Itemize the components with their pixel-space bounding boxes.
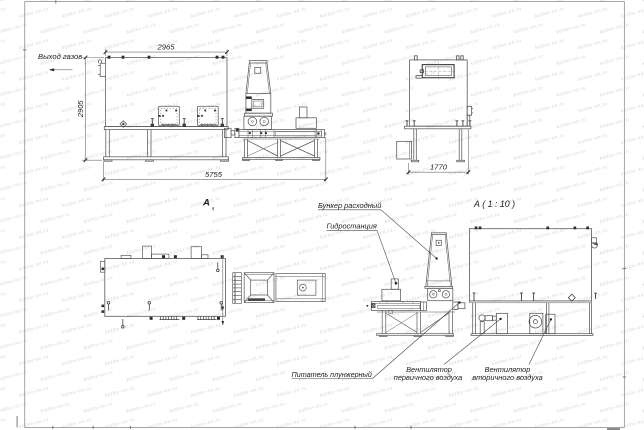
svg-text:kotlov-nn.ru: kotlov-nn.ru [341, 243, 372, 257]
svg-text:kotlov-nn.ru: kotlov-nn.ru [83, 117, 114, 131]
svg-text:kotlov-nn.ru: kotlov-nn.ru [212, 338, 243, 352]
svg-text:kotlov-nn.ru: kotlov-nn.ru [276, 290, 307, 304]
svg-text:kotlov-nn.ru: kotlov-nn.ru [599, 401, 630, 415]
svg-text:kotlov-nn.ru: kotlov-nn.ru [427, 85, 458, 99]
svg-text:kotlov-nn.ru: kotlov-nn.ru [577, 132, 608, 146]
svg-text:kotlov-nn.ru: kotlov-nn.ru [18, 38, 49, 52]
svg-text:kotlov-nn.ru: kotlov-nn.ru [40, 338, 71, 352]
svg-text:kotlov-nn.ru: kotlov-nn.ru [233, 354, 264, 368]
svg-text:kotlov-nn.ru: kotlov-nn.ru [362, 132, 393, 146]
svg-text:kotlov-nn.ru: kotlov-nn.ru [0, 117, 28, 131]
svg-text:kotlov-nn.ru: kotlov-nn.ru [190, 290, 221, 304]
svg-text:kotlov-nn.ru: kotlov-nn.ru [83, 275, 114, 289]
svg-text:kotlov-nn.ru: kotlov-nn.ru [83, 22, 114, 36]
svg-text:kotlov-nn.ru: kotlov-nn.ru [255, 180, 286, 194]
svg-text:kotlov-nn.ru: kotlov-nn.ru [534, 6, 565, 20]
svg-text:kotlov-nn.ru: kotlov-nn.ru [190, 322, 221, 336]
svg-text:kotlov-nn.ru: kotlov-nn.ru [470, 85, 501, 99]
svg-text:kotlov-nn.ru: kotlov-nn.ru [104, 69, 135, 83]
svg-text:kotlov-nn.ru: kotlov-nn.ru [491, 385, 522, 399]
svg-text:kotlov-nn.ru: kotlov-nn.ru [534, 290, 565, 304]
svg-text:kotlov-nn.ru: kotlov-nn.ru [298, 306, 329, 320]
svg-text:kotlov-nn.ru: kotlov-nn.ru [255, 338, 286, 352]
svg-text:kotlov-nn.ru: kotlov-nn.ru [448, 164, 479, 178]
svg-text:kotlov-nn.ru: kotlov-nn.ru [470, 243, 501, 257]
svg-text:kotlov-nn.ru: kotlov-nn.ru [0, 290, 6, 304]
svg-text:kotlov-nn.ru: kotlov-nn.ru [470, 401, 501, 415]
svg-text:kotlov-nn.ru: kotlov-nn.ru [104, 227, 135, 241]
svg-text:kotlov-nn.ru: kotlov-nn.ru [448, 417, 479, 430]
svg-text:kotlov-nn.ru: kotlov-nn.ru [0, 180, 28, 194]
svg-text:kotlov-nn.ru: kotlov-nn.ru [18, 69, 49, 83]
svg-text:kotlov-nn.ru: kotlov-nn.ru [61, 385, 92, 399]
svg-text:kotlov-nn.ru: kotlov-nn.ru [384, 22, 415, 36]
svg-text:kotlov-nn.ru: kotlov-nn.ru [83, 85, 114, 99]
svg-text:kotlov-nn.ru: kotlov-nn.ru [255, 306, 286, 320]
svg-text:kotlov-nn.ru: kotlov-nn.ru [61, 196, 92, 210]
svg-text:kotlov-nn.ru: kotlov-nn.ru [405, 196, 436, 210]
svg-text:kotlov-nn.ru: kotlov-nn.ru [534, 132, 565, 146]
svg-text:kotlov-nn.ru: kotlov-nn.ru [40, 148, 71, 162]
svg-text:kotlov-nn.ru: kotlov-nn.ru [276, 322, 307, 336]
svg-text:kotlov-nn.ru: kotlov-nn.ru [556, 85, 587, 99]
svg-text:kotlov-nn.ru: kotlov-nn.ru [0, 259, 6, 273]
svg-text:kotlov-nn.ru: kotlov-nn.ru [0, 132, 6, 146]
svg-text:kotlov-nn.ru: kotlov-nn.ru [599, 243, 630, 257]
svg-text:kotlov-nn.ru: kotlov-nn.ru [0, 85, 28, 99]
svg-text:kotlov-nn.ru: kotlov-nn.ru [61, 6, 92, 20]
svg-text:kotlov-nn.ru: kotlov-nn.ru [0, 369, 28, 383]
svg-text:kotlov-nn.ru: kotlov-nn.ru [298, 180, 329, 194]
svg-text:kotlov-nn.ru: kotlov-nn.ru [362, 417, 393, 430]
svg-text:kotlov-nn.ru: kotlov-nn.ru [233, 196, 264, 210]
svg-text:kotlov-nn.ru: kotlov-nn.ru [233, 164, 264, 178]
svg-text:kotlov-nn.ru: kotlov-nn.ru [212, 401, 243, 415]
svg-text:kotlov-nn.ru: kotlov-nn.ru [233, 101, 264, 115]
svg-text:kotlov-nn.ru: kotlov-nn.ru [255, 117, 286, 131]
svg-text:kotlov-nn.ru: kotlov-nn.ru [61, 322, 92, 336]
svg-text:kotlov-nn.ru: kotlov-nn.ru [599, 148, 630, 162]
svg-text:kotlov-nn.ru: kotlov-nn.ru [83, 180, 114, 194]
svg-text:kotlov-nn.ru: kotlov-nn.ru [255, 369, 286, 383]
svg-text:kotlov-nn.ru: kotlov-nn.ru [427, 180, 458, 194]
svg-text:kotlov-nn.ru: kotlov-nn.ru [233, 259, 264, 273]
svg-text:kotlov-nn.ru: kotlov-nn.ru [556, 117, 587, 131]
svg-text:kotlov-nn.ru: kotlov-nn.ru [405, 101, 436, 115]
svg-text:kotlov-nn.ru: kotlov-nn.ru [599, 306, 630, 320]
svg-text:kotlov-nn.ru: kotlov-nn.ru [147, 101, 178, 115]
svg-text:Бункер расходный: Бункер расходный [318, 201, 381, 210]
svg-text:kotlov-nn.ru: kotlov-nn.ru [491, 290, 522, 304]
svg-text:kotlov-nn.ru: kotlov-nn.ru [126, 85, 157, 99]
svg-text:kotlov-nn.ru: kotlov-nn.ru [40, 22, 71, 36]
svg-text:первичного воздуха: первичного воздуха [394, 373, 462, 382]
svg-text:kotlov-nn.ru: kotlov-nn.ru [126, 401, 157, 415]
svg-text:kotlov-nn.ru: kotlov-nn.ru [83, 369, 114, 383]
svg-text:kotlov-nn.ru: kotlov-nn.ru [362, 69, 393, 83]
svg-text:kotlov-nn.ru: kotlov-nn.ru [405, 385, 436, 399]
svg-text:kotlov-nn.ru: kotlov-nn.ru [190, 417, 221, 430]
svg-text:kotlov-nn.ru: kotlov-nn.ru [40, 117, 71, 131]
svg-text:kotlov-nn.ru: kotlov-nn.ru [556, 243, 587, 257]
svg-text:kotlov-nn.ru: kotlov-nn.ru [470, 148, 501, 162]
svg-text:kotlov-nn.ru: kotlov-nn.ru [599, 211, 630, 225]
svg-text:kotlov-nn.ru: kotlov-nn.ru [212, 243, 243, 257]
svg-text:2965: 2965 [157, 42, 176, 51]
svg-text:kotlov-nn.ru: kotlov-nn.ru [556, 401, 587, 415]
svg-text:kotlov-nn.ru: kotlov-nn.ru [599, 22, 630, 36]
svg-text:kotlov-nn.ru: kotlov-nn.ru [491, 132, 522, 146]
svg-text:kotlov-nn.ru: kotlov-nn.ru [83, 306, 114, 320]
svg-text:kotlov-nn.ru: kotlov-nn.ru [556, 369, 587, 383]
svg-text:kotlov-nn.ru: kotlov-nn.ru [0, 401, 28, 415]
svg-text:kotlov-nn.ru: kotlov-nn.ru [147, 227, 178, 241]
svg-text:kotlov-nn.ru: kotlov-nn.ru [169, 369, 200, 383]
svg-text:kotlov-nn.ru: kotlov-nn.ru [341, 117, 372, 131]
svg-text:kotlov-nn.ru: kotlov-nn.ru [0, 196, 6, 210]
svg-text:kotlov-nn.ru: kotlov-nn.ru [577, 354, 608, 368]
svg-text:kotlov-nn.ru: kotlov-nn.ru [577, 38, 608, 52]
svg-text:kotlov-nn.ru: kotlov-nn.ru [599, 369, 630, 383]
svg-text:kotlov-nn.ru: kotlov-nn.ru [61, 164, 92, 178]
svg-text:kotlov-nn.ru: kotlov-nn.ru [18, 417, 49, 430]
svg-text:kotlov-nn.ru: kotlov-nn.ru [448, 38, 479, 52]
svg-text:kotlov-nn.ru: kotlov-nn.ru [169, 275, 200, 289]
svg-text:kotlov-nn.ru: kotlov-nn.ru [319, 6, 350, 20]
svg-text:kotlov-nn.ru: kotlov-nn.ru [147, 322, 178, 336]
svg-text:kotlov-nn.ru: kotlov-nn.ru [126, 211, 157, 225]
svg-text:kotlov-nn.ru: kotlov-nn.ru [534, 354, 565, 368]
svg-text:kotlov-nn.ru: kotlov-nn.ru [577, 227, 608, 241]
svg-text:kotlov-nn.ru: kotlov-nn.ru [276, 385, 307, 399]
svg-text:kotlov-nn.ru: kotlov-nn.ru [298, 243, 329, 257]
svg-text:kotlov-nn.ru: kotlov-nn.ru [319, 164, 350, 178]
svg-text:kotlov-nn.ru: kotlov-nn.ru [384, 148, 415, 162]
svg-text:kotlov-nn.ru: kotlov-nn.ru [405, 259, 436, 273]
svg-text:kotlov-nn.ru: kotlov-nn.ru [384, 275, 415, 289]
svg-text:kotlov-nn.ru: kotlov-nn.ru [513, 275, 544, 289]
svg-text:kotlov-nn.ru: kotlov-nn.ru [40, 211, 71, 225]
svg-text:kotlov-nn.ru: kotlov-nn.ru [212, 180, 243, 194]
svg-text:kotlov-nn.ru: kotlov-nn.ru [0, 306, 28, 320]
svg-text:kotlov-nn.ru: kotlov-nn.ru [147, 259, 178, 273]
svg-text:kotlov-nn.ru: kotlov-nn.ru [448, 101, 479, 115]
svg-text:kotlov-nn.ru: kotlov-nn.ru [341, 53, 372, 67]
svg-text:kotlov-nn.ru: kotlov-nn.ru [18, 196, 49, 210]
svg-text:kotlov-nn.ru: kotlov-nn.ru [577, 6, 608, 20]
svg-text:kotlov-nn.ru: kotlov-nn.ru [233, 38, 264, 52]
svg-text:kotlov-nn.ru: kotlov-nn.ru [233, 417, 264, 430]
svg-text:kotlov-nn.ru: kotlov-nn.ru [61, 69, 92, 83]
svg-text:kotlov-nn.ru: kotlov-nn.ru [534, 196, 565, 210]
svg-text:kotlov-nn.ru: kotlov-nn.ru [341, 306, 372, 320]
svg-text:kotlov-nn.ru: kotlov-nn.ru [169, 53, 200, 67]
svg-text:kotlov-nn.ru: kotlov-nn.ru [362, 38, 393, 52]
svg-text:kotlov-nn.ru: kotlov-nn.ru [104, 322, 135, 336]
svg-text:kotlov-nn.ru: kotlov-nn.ru [18, 290, 49, 304]
svg-text:kotlov-nn.ru: kotlov-nn.ru [448, 385, 479, 399]
svg-text:kotlov-nn.ru: kotlov-nn.ru [599, 275, 630, 289]
svg-text:kotlov-nn.ru: kotlov-nn.ru [276, 196, 307, 210]
svg-text:kotlov-nn.ru: kotlov-nn.ru [104, 101, 135, 115]
svg-text:kotlov-nn.ru: kotlov-nn.ru [298, 85, 329, 99]
svg-text:kotlov-nn.ru: kotlov-nn.ru [0, 227, 6, 241]
svg-text:kotlov-nn.ru: kotlov-nn.ru [556, 306, 587, 320]
svg-text:kotlov-nn.ru: kotlov-nn.ru [0, 69, 6, 83]
svg-text:kotlov-nn.ru: kotlov-nn.ru [0, 211, 28, 225]
svg-text:А: А [202, 198, 210, 209]
svg-text:kotlov-nn.ru: kotlov-nn.ru [384, 53, 415, 67]
svg-text:kotlov-nn.ru: kotlov-nn.ru [0, 243, 28, 257]
svg-text:kotlov-nn.ru: kotlov-nn.ru [40, 401, 71, 415]
svg-text:kotlov-nn.ru: kotlov-nn.ru [319, 354, 350, 368]
svg-text:kotlov-nn.ru: kotlov-nn.ru [61, 290, 92, 304]
svg-text:kotlov-nn.ru: kotlov-nn.ru [18, 6, 49, 20]
svg-text:kotlov-nn.ru: kotlov-nn.ru [427, 22, 458, 36]
svg-text:kotlov-nn.ru: kotlov-nn.ru [384, 211, 415, 225]
svg-text:kotlov-nn.ru: kotlov-nn.ru [40, 243, 71, 257]
svg-text:kotlov-nn.ru: kotlov-nn.ru [470, 275, 501, 289]
svg-text:kotlov-nn.ru: kotlov-nn.ru [126, 53, 157, 67]
svg-text:kotlov-nn.ru: kotlov-nn.ru [362, 290, 393, 304]
svg-text:kotlov-nn.ru: kotlov-nn.ru [104, 385, 135, 399]
svg-text:kotlov-nn.ru: kotlov-nn.ru [405, 132, 436, 146]
svg-text:kotlov-nn.ru: kotlov-nn.ru [147, 69, 178, 83]
svg-text:kotlov-nn.ru: kotlov-nn.ru [18, 164, 49, 178]
svg-text:kotlov-nn.ru: kotlov-nn.ru [599, 180, 630, 194]
svg-text:kotlov-nn.ru: kotlov-nn.ru [212, 85, 243, 99]
svg-text:kotlov-nn.ru: kotlov-nn.ru [40, 85, 71, 99]
svg-text:kotlov-nn.ru: kotlov-nn.ru [0, 164, 6, 178]
svg-text:kotlov-nn.ru: kotlov-nn.ru [319, 101, 350, 115]
svg-text:kotlov-nn.ru: kotlov-nn.ru [190, 132, 221, 146]
svg-text:kotlov-nn.ru: kotlov-nn.ru [169, 22, 200, 36]
svg-text:kotlov-nn.ru: kotlov-nn.ru [341, 85, 372, 99]
svg-text:kotlov-nn.ru: kotlov-nn.ru [470, 211, 501, 225]
svg-text:kotlov-nn.ru: kotlov-nn.ru [233, 227, 264, 241]
svg-text:kotlov-nn.ru: kotlov-nn.ru [556, 180, 587, 194]
svg-text:kotlov-nn.ru: kotlov-nn.ru [104, 196, 135, 210]
svg-text:kotlov-nn.ru: kotlov-nn.ru [405, 417, 436, 430]
svg-text:kotlov-nn.ru: kotlov-nn.ru [341, 22, 372, 36]
svg-text:kotlov-nn.ru: kotlov-nn.ru [61, 354, 92, 368]
svg-text:Выход газов: Выход газов [38, 52, 82, 61]
svg-text:kotlov-nn.ru: kotlov-nn.ru [126, 22, 157, 36]
svg-text:kotlov-nn.ru: kotlov-nn.ru [104, 6, 135, 20]
svg-text:kotlov-nn.ru: kotlov-nn.ru [126, 243, 157, 257]
svg-text:kotlov-nn.ru: kotlov-nn.ru [104, 354, 135, 368]
svg-text:kotlov-nn.ru: kotlov-nn.ru [384, 180, 415, 194]
svg-text:kotlov-nn.ru: kotlov-nn.ru [0, 38, 6, 52]
svg-text:kotlov-nn.ru: kotlov-nn.ru [276, 417, 307, 430]
svg-text:kotlov-nn.ru: kotlov-nn.ru [0, 354, 6, 368]
svg-text:kotlov-nn.ru: kotlov-nn.ru [255, 401, 286, 415]
svg-text:kotlov-nn.ru: kotlov-nn.ru [190, 354, 221, 368]
svg-text:kotlov-nn.ru: kotlov-nn.ru [276, 38, 307, 52]
svg-text:kotlov-nn.ru: kotlov-nn.ru [0, 22, 28, 36]
svg-text:kotlov-nn.ru: kotlov-nn.ru [470, 22, 501, 36]
svg-text:kotlov-nn.ru: kotlov-nn.ru [384, 243, 415, 257]
svg-text:kotlov-nn.ru: kotlov-nn.ru [298, 22, 329, 36]
svg-text:kotlov-nn.ru: kotlov-nn.ru [577, 385, 608, 399]
svg-text:kotlov-nn.ru: kotlov-nn.ru [104, 259, 135, 273]
svg-text:kotlov-nn.ru: kotlov-nn.ru [448, 227, 479, 241]
svg-text:kotlov-nn.ru: kotlov-nn.ru [276, 132, 307, 146]
svg-text:kotlov-nn.ru: kotlov-nn.ru [104, 164, 135, 178]
svg-text:kotlov-nn.ru: kotlov-nn.ru [534, 417, 565, 430]
svg-text:kotlov-nn.ru: kotlov-nn.ru [319, 259, 350, 273]
svg-text:kotlov-nn.ru: kotlov-nn.ru [276, 354, 307, 368]
svg-text:kotlov-nn.ru: kotlov-nn.ru [513, 180, 544, 194]
svg-text:kotlov-nn.ru: kotlov-nn.ru [319, 322, 350, 336]
svg-text:kotlov-nn.ru: kotlov-nn.ru [513, 22, 544, 36]
svg-text:kotlov-nn.ru: kotlov-nn.ru [556, 275, 587, 289]
svg-text:kotlov-nn.ru: kotlov-nn.ru [427, 401, 458, 415]
svg-text:kotlov-nn.ru: kotlov-nn.ru [448, 6, 479, 20]
svg-text:kotlov-nn.ru: kotlov-nn.ru [0, 322, 6, 336]
svg-text:kotlov-nn.ru: kotlov-nn.ru [169, 180, 200, 194]
svg-text:kotlov-nn.ru: kotlov-nn.ru [319, 69, 350, 83]
svg-text:kotlov-nn.ru: kotlov-nn.ru [0, 275, 28, 289]
svg-text:kotlov-nn.ru: kotlov-nn.ru [491, 101, 522, 115]
svg-text:kotlov-nn.ru: kotlov-nn.ru [577, 196, 608, 210]
svg-text:kotlov-nn.ru: kotlov-nn.ru [491, 69, 522, 83]
svg-text:kotlov-nn.ru: kotlov-nn.ru [233, 6, 264, 20]
svg-text:kotlov-nn.ru: kotlov-nn.ru [341, 338, 372, 352]
svg-text:kotlov-nn.ru: kotlov-nn.ru [298, 401, 329, 415]
svg-text:kotlov-nn.ru: kotlov-nn.ru [190, 69, 221, 83]
svg-text:kotlov-nn.ru: kotlov-nn.ru [40, 369, 71, 383]
svg-text:kotlov-nn.ru: kotlov-nn.ru [599, 338, 630, 352]
svg-text:kotlov-nn.ru: kotlov-nn.ru [212, 53, 243, 67]
svg-text:kotlov-nn.ru: kotlov-nn.ru [233, 322, 264, 336]
svg-text:kotlov-nn.ru: kotlov-nn.ru [556, 53, 587, 67]
svg-text:kotlov-nn.ru: kotlov-nn.ru [470, 117, 501, 131]
svg-text:kotlov-nn.ru: kotlov-nn.ru [362, 164, 393, 178]
svg-text:kotlov-nn.ru: kotlov-nn.ru [276, 227, 307, 241]
svg-text:kotlov-nn.ru: kotlov-nn.ru [169, 85, 200, 99]
svg-text:kotlov-nn.ru: kotlov-nn.ru [212, 306, 243, 320]
svg-text:kotlov-nn.ru: kotlov-nn.ru [212, 211, 243, 225]
svg-text:kotlov-nn.ru: kotlov-nn.ru [276, 69, 307, 83]
svg-text:kotlov-nn.ru: kotlov-nn.ru [599, 53, 630, 67]
svg-text:kotlov-nn.ru: kotlov-nn.ru [470, 53, 501, 67]
svg-text:kotlov-nn.ru: kotlov-nn.ru [126, 338, 157, 352]
svg-text:kotlov-nn.ru: kotlov-nn.ru [513, 243, 544, 257]
svg-text:kotlov-nn.ru: kotlov-nn.ru [147, 132, 178, 146]
svg-text:kotlov-nn.ru: kotlov-nn.ru [0, 101, 6, 115]
svg-text:kotlov-nn.ru: kotlov-nn.ru [0, 417, 6, 430]
svg-text:kotlov-nn.ru: kotlov-nn.ru [18, 354, 49, 368]
svg-text:kotlov-nn.ru: kotlov-nn.ru [104, 38, 135, 52]
svg-text:kotlov-nn.ru: kotlov-nn.ru [470, 180, 501, 194]
svg-text:kotlov-nn.ru: kotlov-nn.ru [255, 211, 286, 225]
svg-text:kotlov-nn.ru: kotlov-nn.ru [405, 38, 436, 52]
svg-text:kotlov-nn.ru: kotlov-nn.ru [212, 22, 243, 36]
svg-text:kotlov-nn.ru: kotlov-nn.ru [147, 196, 178, 210]
svg-text:kotlov-nn.ru: kotlov-nn.ru [577, 290, 608, 304]
svg-text:kotlov-nn.ru: kotlov-nn.ru [534, 227, 565, 241]
svg-text:kotlov-nn.ru: kotlov-nn.ru [362, 6, 393, 20]
svg-text:Гидростанция: Гидростанция [327, 222, 377, 231]
svg-text:kotlov-nn.ru: kotlov-nn.ru [0, 148, 28, 162]
svg-text:kotlov-nn.ru: kotlov-nn.ru [491, 417, 522, 430]
svg-text:kotlov-nn.ru: kotlov-nn.ru [427, 148, 458, 162]
svg-text:kotlov-nn.ru: kotlov-nn.ru [513, 148, 544, 162]
svg-text:kotlov-nn.ru: kotlov-nn.ru [169, 243, 200, 257]
svg-text:kotlov-nn.ru: kotlov-nn.ru [362, 385, 393, 399]
svg-text:kotlov-nn.ru: kotlov-nn.ru [190, 101, 221, 115]
svg-text:kotlov-nn.ru: kotlov-nn.ru [18, 227, 49, 241]
svg-text:kotlov-nn.ru: kotlov-nn.ru [126, 275, 157, 289]
svg-text:kotlov-nn.ru: kotlov-nn.ru [83, 338, 114, 352]
svg-text:вторичного воздуха: вторичного воздуха [472, 373, 542, 382]
svg-text:kotlov-nn.ru: kotlov-nn.ru [513, 338, 544, 352]
svg-text:А ( 1 : 10 ): А ( 1 : 10 ) [473, 199, 515, 209]
svg-text:kotlov-nn.ru: kotlov-nn.ru [427, 338, 458, 352]
svg-text:kotlov-nn.ru: kotlov-nn.ru [169, 338, 200, 352]
svg-text:Питатель плунжерный: Питатель плунжерный [292, 370, 372, 379]
svg-text:kotlov-nn.ru: kotlov-nn.ru [341, 401, 372, 415]
svg-text:kotlov-nn.ru: kotlov-nn.ru [384, 117, 415, 131]
svg-text:kotlov-nn.ru: kotlov-nn.ru [491, 227, 522, 241]
svg-text:kotlov-nn.ru: kotlov-nn.ru [534, 259, 565, 273]
svg-text:kotlov-nn.ru: kotlov-nn.ru [448, 354, 479, 368]
svg-text:kotlov-nn.ru: kotlov-nn.ru [18, 385, 49, 399]
svg-text:kotlov-nn.ru: kotlov-nn.ru [190, 6, 221, 20]
svg-text:kotlov-nn.ru: kotlov-nn.ru [190, 385, 221, 399]
svg-text:kotlov-nn.ru: kotlov-nn.ru [319, 385, 350, 399]
svg-text:kotlov-nn.ru: kotlov-nn.ru [427, 117, 458, 131]
svg-text:kotlov-nn.ru: kotlov-nn.ru [427, 211, 458, 225]
svg-text:5755: 5755 [205, 170, 223, 179]
svg-text:kotlov-nn.ru: kotlov-nn.ru [577, 259, 608, 273]
svg-text:kotlov-nn.ru: kotlov-nn.ru [513, 211, 544, 225]
svg-text:kotlov-nn.ru: kotlov-nn.ru [384, 338, 415, 352]
svg-text:kotlov-nn.ru: kotlov-nn.ru [212, 369, 243, 383]
svg-text:kotlov-nn.ru: kotlov-nn.ru [61, 417, 92, 430]
svg-text:kotlov-nn.ru: kotlov-nn.ru [83, 243, 114, 257]
svg-text:kotlov-nn.ru: kotlov-nn.ru [298, 275, 329, 289]
svg-text:kotlov-nn.ru: kotlov-nn.ru [0, 385, 6, 399]
svg-text:kotlov-nn.ru: kotlov-nn.ru [534, 69, 565, 83]
svg-text:kotlov-nn.ru: kotlov-nn.ru [319, 290, 350, 304]
svg-text:kotlov-nn.ru: kotlov-nn.ru [577, 101, 608, 115]
svg-text:kotlov-nn.ru: kotlov-nn.ru [276, 101, 307, 115]
svg-text:kotlov-nn.ru: kotlov-nn.ru [556, 22, 587, 36]
svg-text:kotlov-nn.ru: kotlov-nn.ru [384, 401, 415, 415]
svg-text:kotlov-nn.ru: kotlov-nn.ru [556, 211, 587, 225]
svg-text:kotlov-nn.ru: kotlov-nn.ru [319, 417, 350, 430]
svg-text:kotlov-nn.ru: kotlov-nn.ru [233, 385, 264, 399]
svg-text:kotlov-nn.ru: kotlov-nn.ru [147, 6, 178, 20]
svg-text:kotlov-nn.ru: kotlov-nn.ru [513, 117, 544, 131]
svg-text:kotlov-nn.ru: kotlov-nn.ru [599, 85, 630, 99]
svg-text:kotlov-nn.ru: kotlov-nn.ru [0, 338, 28, 352]
svg-text:kotlov-nn.ru: kotlov-nn.ru [491, 6, 522, 20]
svg-text:kotlov-nn.ru: kotlov-nn.ru [534, 38, 565, 52]
svg-text:kotlov-nn.ru: kotlov-nn.ru [40, 275, 71, 289]
svg-text:kotlov-nn.ru: kotlov-nn.ru [599, 117, 630, 131]
svg-text:kotlov-nn.ru: kotlov-nn.ru [384, 85, 415, 99]
svg-text:kotlov-nn.ru: kotlov-nn.ru [276, 259, 307, 273]
svg-text:kotlov-nn.ru: kotlov-nn.ru [0, 6, 6, 20]
svg-text:kotlov-nn.ru: kotlov-nn.ru [126, 369, 157, 383]
svg-text:kotlov-nn.ru: kotlov-nn.ru [556, 148, 587, 162]
svg-text:kotlov-nn.ru: kotlov-nn.ru [83, 401, 114, 415]
svg-text:kotlov-nn.ru: kotlov-nn.ru [0, 53, 28, 67]
svg-text:kotlov-nn.ru: kotlov-nn.ru [534, 164, 565, 178]
